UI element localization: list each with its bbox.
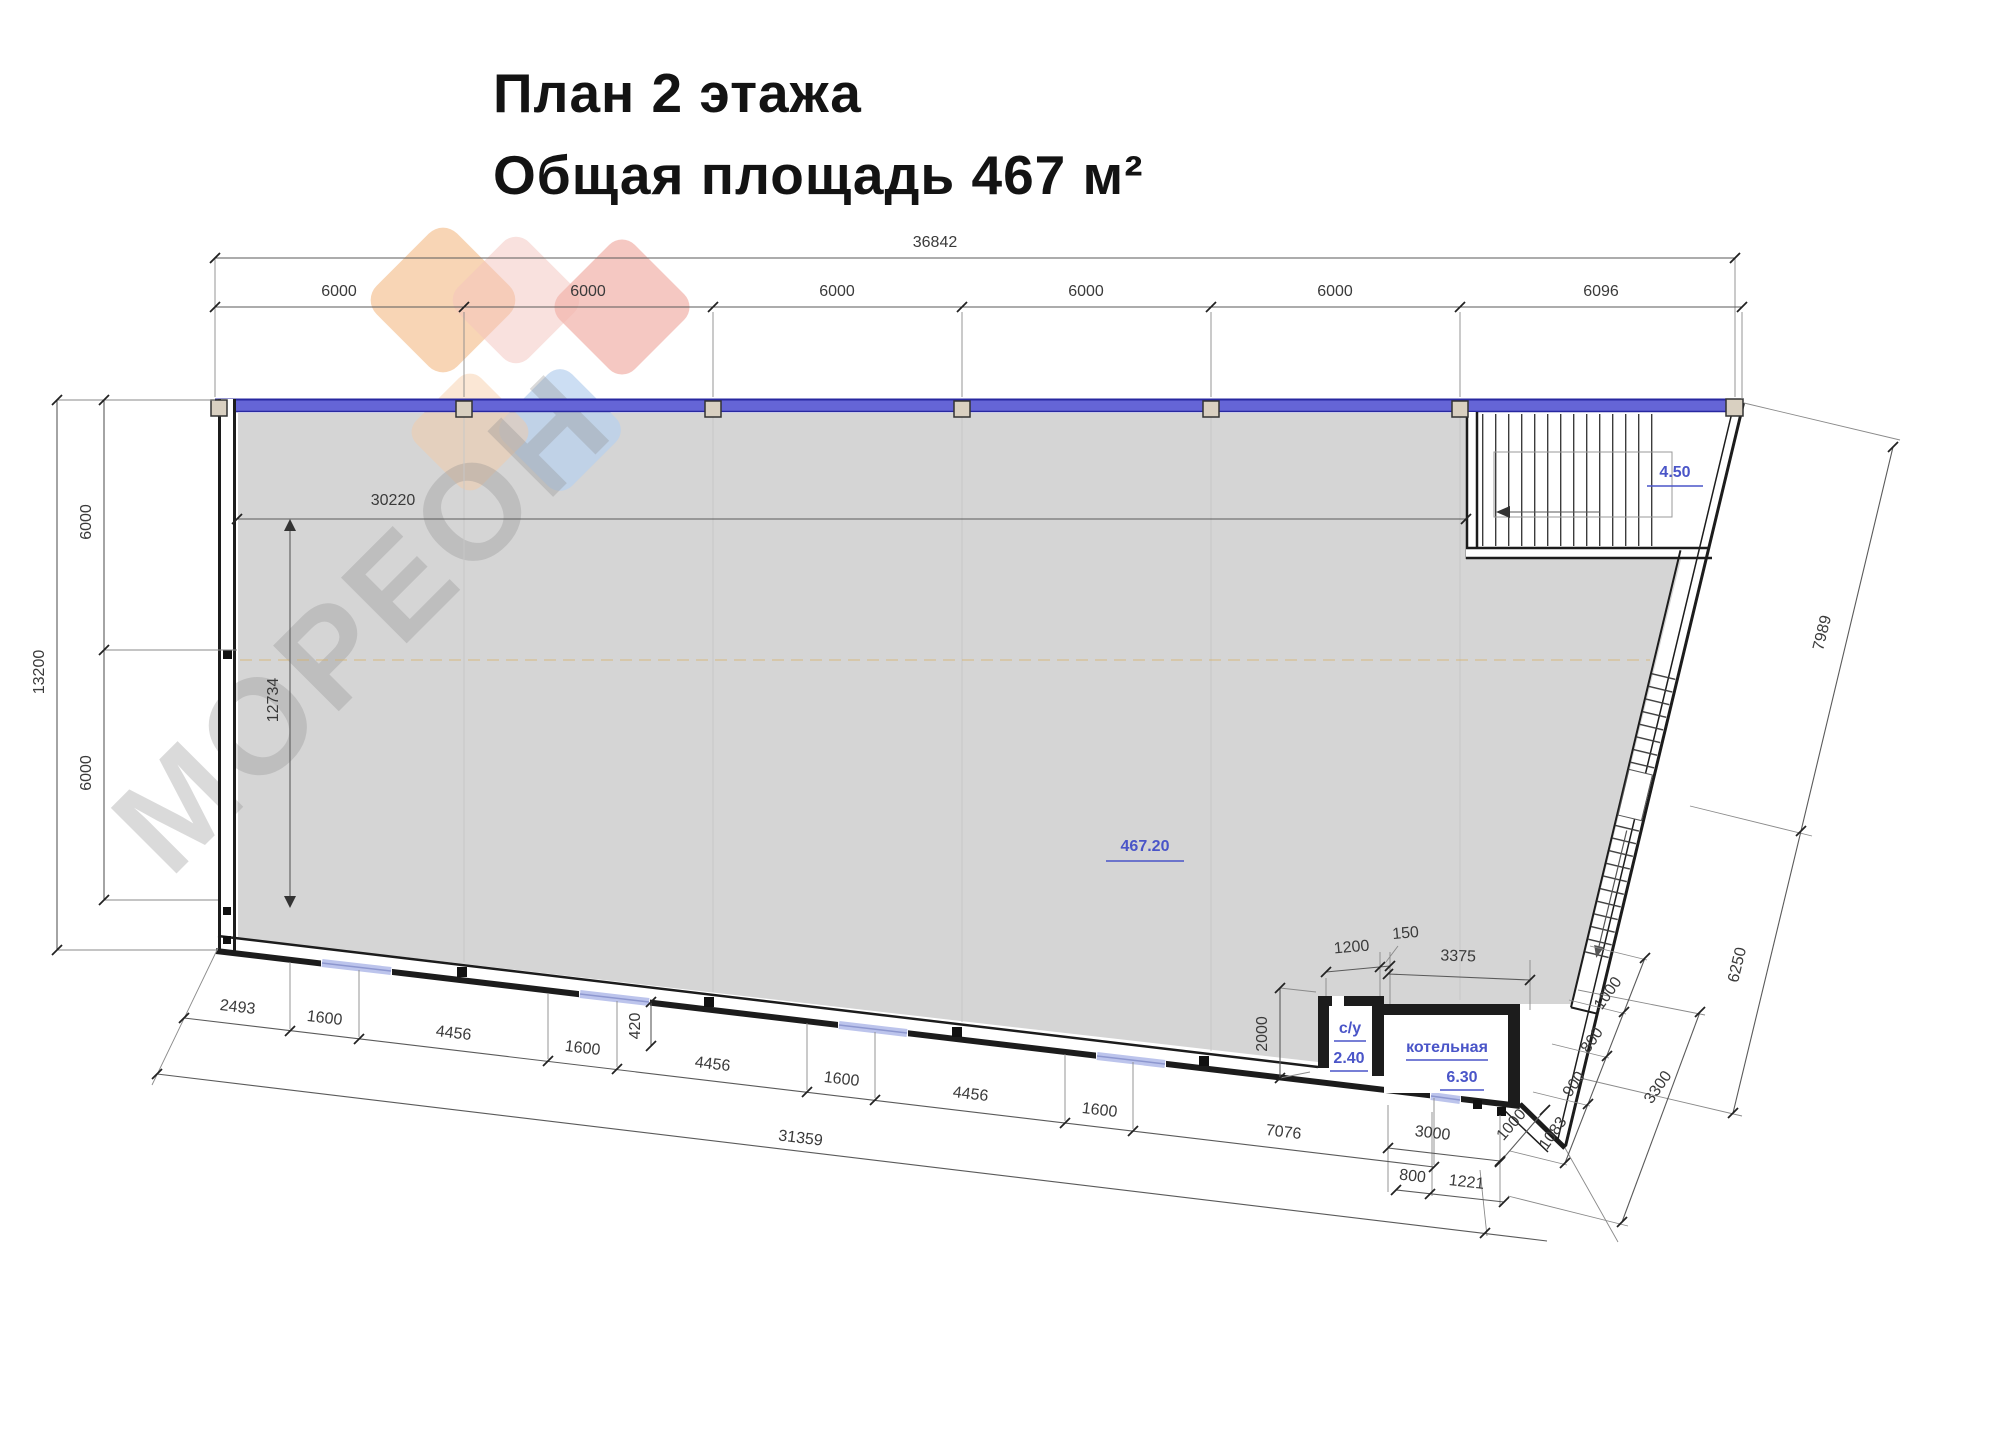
boiler-right-wall [1508,1015,1520,1107]
dim-bottom-2: 4456 [435,1023,472,1044]
dim-br-0: 3000 [1414,1123,1451,1144]
dim-left-overall: 13200 [31,650,48,695]
boiler-room-area: 6.30 [1446,1069,1477,1086]
dim-br-1: 800 [1398,1167,1427,1187]
dim-bottom-6: 4456 [952,1084,989,1105]
boiler-room-name: котельная [1406,1039,1488,1056]
dim-top-seg-1: 6000 [570,283,606,300]
dim-room-w3: 3375 [1440,947,1476,965]
floor-plan-drawing: МОРЕОН [0,0,2000,1448]
top-wall [215,399,1742,412]
dim-br-2: 1221 [1448,1172,1485,1193]
dim-right-overall: 3300 [1641,1068,1675,1107]
dim-top-seg-3: 6000 [1068,283,1104,300]
dim-top-seg-0: 6000 [321,283,357,300]
main-area-label: 467.20 [1121,838,1170,855]
dim-left-seg-0: 6000 [78,504,95,540]
dim-room-h: 2000 [1254,1016,1271,1052]
dim-bottom-step: 420 [627,1013,644,1040]
dim-left-seg-1: 6000 [78,755,95,791]
stairwell-treads [1482,414,1658,546]
wc-top-wall [1318,996,1332,1006]
dim-bottom-5: 1600 [823,1069,860,1090]
dim-right-upper: 7989 [1810,614,1835,653]
dim-top-seg-2: 6000 [819,283,855,300]
dim-room-w1: 1200 [1333,937,1370,957]
wc-room-name: с/у [1339,1020,1361,1037]
wc-room-area: 2.40 [1333,1050,1364,1067]
dim-interior-width: 30220 [371,492,416,509]
dim-bottom-overall: 31359 [777,1127,823,1149]
wc-left-wall [1318,1006,1329,1068]
stairwell [1482,414,1672,546]
floor-plan-page: План 2 этажа Общая площадь 467 м² МОРЕОН [0,0,2000,1448]
dim-bottom-0: 2493 [219,997,256,1018]
dim-bottom-8: 7076 [1265,1122,1302,1143]
dim-bottom-1: 1600 [306,1008,343,1029]
dim-top-seg-5: 6096 [1583,283,1619,300]
dim-bottom-3: 1600 [564,1038,601,1059]
dim-bottom-4: 4456 [694,1054,731,1075]
dim-rchain-2: 900 [1560,1069,1589,1101]
dim-right-stair: 6250 [1725,946,1750,985]
boiler-top-wall [1372,1004,1520,1015]
dim-interior-height: 12734 [265,678,282,723]
page-title: План 2 этажа Общая площадь 467 м² [493,52,1144,216]
title-line-2: Общая площадь 467 м² [493,134,1144,216]
dim-top-overall: 36842 [913,234,958,251]
stair-area-label: 4.50 [1659,464,1690,481]
dim-top-seg-4: 6000 [1317,283,1353,300]
title-line-1: План 2 этажа [493,52,1144,134]
dim-bottom-7: 1600 [1081,1100,1118,1121]
dim-room-w2: 150 [1392,924,1420,943]
